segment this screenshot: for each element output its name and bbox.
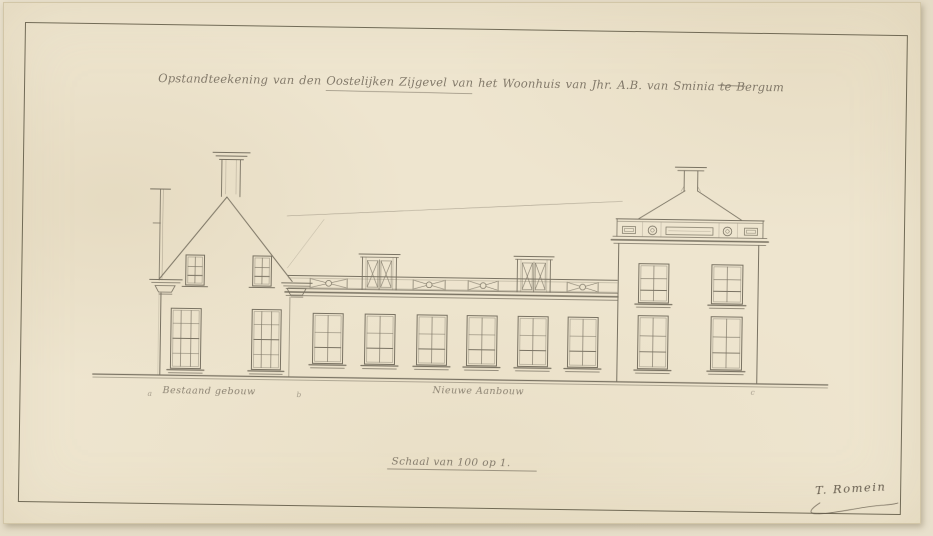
window: [309, 313, 347, 368]
reference-mark-b: b: [296, 390, 301, 399]
right-pavilion: [609, 166, 769, 384]
window: [167, 308, 205, 373]
roof-ridge-lines: [286, 196, 622, 272]
window: [514, 316, 552, 371]
window: [249, 256, 275, 288]
scale-note: Schaal van 100 op 1.: [391, 455, 510, 469]
reference-mark-a: a: [147, 389, 152, 398]
window: [564, 317, 602, 372]
balustrade-pedestal: [514, 256, 555, 292]
window: [182, 255, 208, 287]
elevation-drawing: a b c: [0, 0, 933, 536]
window: [708, 265, 747, 309]
pavilion-chimney: [675, 167, 706, 191]
signature-flourish: [811, 502, 898, 515]
label-existing-building: Bestaand gebouw: [162, 385, 255, 397]
title-flourishes: [326, 79, 745, 97]
eaves-bracket-left: [149, 279, 182, 294]
pavilion-cornice: [611, 236, 768, 245]
balustrade: [288, 253, 617, 293]
left-chimney: [212, 152, 250, 197]
balustrade-x-panel: [567, 282, 598, 292]
wing-cornice: [285, 288, 618, 300]
window: [463, 316, 501, 371]
window: [635, 264, 673, 308]
scanned-sheet: Opstandteekening van den Oostelijken Zij…: [0, 0, 933, 536]
window: [707, 317, 746, 375]
middle-wing: [285, 253, 619, 300]
pavilion-frieze: [616, 219, 764, 239]
reference-mark-c: c: [751, 388, 756, 397]
balustrade-x-panel: [310, 278, 347, 288]
sheet-content: Opstandteekening van den Oostelijken Zij…: [0, 0, 933, 536]
balustrade-x-panel: [468, 281, 498, 291]
window: [361, 314, 399, 369]
balustrade-pedestal: [359, 254, 401, 290]
pavilion-roof: [638, 190, 742, 221]
label-new-extension: Nieuwe Aanbouw: [432, 385, 524, 397]
window: [248, 309, 285, 374]
window: [413, 315, 451, 370]
windows: [167, 255, 747, 382]
scale-underline: [387, 469, 536, 471]
balustrade-x-panel: [413, 280, 445, 290]
window: [634, 316, 672, 374]
balustrade-pedestals: [359, 254, 555, 292]
